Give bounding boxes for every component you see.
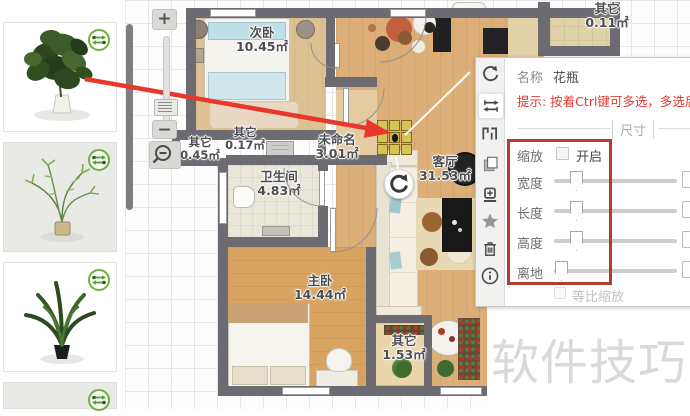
room-label-bedroom2: 次卧10.45㎡ [222, 26, 302, 54]
window-bottom-2 [440, 387, 482, 395]
room-label-unnamed: 未命名3.01㎡ [308, 133, 366, 161]
window-top-1 [210, 9, 256, 17]
room-label-other011: 其它0.11㎡ [576, 2, 638, 30]
rotate-arrow-icon [385, 170, 413, 198]
stove[interactable] [433, 12, 451, 52]
rug-flower3 [420, 248, 438, 266]
selected-vase-handles[interactable] [377, 120, 414, 157]
window-left [219, 172, 227, 224]
section-title-size: 尺寸 [612, 120, 654, 139]
swap-arrows-icon[interactable] [87, 388, 111, 412]
rotate-handle[interactable] [384, 169, 414, 199]
rotate-icon[interactable] [480, 64, 500, 84]
catalog-sidebar [0, 0, 125, 409]
divider-line-right [659, 128, 690, 129]
star-icon[interactable] [480, 211, 500, 231]
bed-master-duvet [228, 303, 308, 323]
watermark-block: 软件技巧 [487, 307, 690, 409]
divider-line-left [517, 128, 610, 129]
table-decor-dot2 [458, 228, 462, 232]
selection-handle[interactable] [389, 144, 400, 155]
table-berries1 [438, 328, 445, 335]
rug-circle-brown [398, 31, 412, 45]
watermark-text: 软件技巧 [491, 323, 687, 393]
wall-bathroom-bottom [226, 237, 328, 247]
wall-left-upper [186, 8, 196, 138]
table-berries2 [449, 336, 455, 342]
swap-arrows-icon[interactable] [87, 268, 111, 292]
width-input[interactable] [682, 171, 690, 188]
catalog-item-plant-ficus[interactable] [3, 22, 117, 132]
selection-handle[interactable] [377, 132, 388, 143]
proportional-label: 等比缩放 [572, 286, 624, 305]
catalog-item-plant-palm[interactable] [3, 262, 117, 372]
trash-icon[interactable] [480, 239, 500, 259]
catalog-item-plant-partial[interactable] [3, 382, 117, 409]
wall-balcony-top [374, 315, 426, 323]
copy-icon[interactable] [480, 154, 500, 174]
height-input[interactable] [682, 231, 690, 248]
red-highlight-frame [507, 139, 612, 285]
rug-dot [368, 24, 376, 32]
selected-vase[interactable] [389, 132, 400, 143]
zoom-slider-handle[interactable] [154, 99, 178, 116]
selection-handle[interactable] [401, 132, 412, 143]
desk-chair[interactable] [326, 348, 352, 372]
move-icon[interactable] [480, 184, 500, 204]
door-leaf-living [330, 208, 336, 252]
selection-handle[interactable] [401, 144, 412, 155]
bed-master-pillow1 [232, 366, 268, 385]
room-label-other017: 其它0.17㎡ [218, 126, 272, 151]
door-leaf-hall [343, 88, 349, 126]
rug-circle-black [424, 22, 435, 33]
elevation-icon[interactable] [480, 124, 500, 144]
sofa-pillow2 [389, 251, 402, 269]
room-label-living: 客厅31.53㎡ [413, 155, 477, 183]
wall-other-bottom [538, 46, 620, 56]
window-bottom-1 [282, 387, 330, 395]
bed-master-pillow2 [270, 366, 306, 385]
info-icon[interactable] [480, 266, 500, 286]
room-label-bathroom: 卫生间4.83㎡ [246, 170, 312, 198]
name-label: 名称 [517, 67, 543, 86]
flip-icon[interactable] [478, 93, 504, 119]
selection-handle[interactable] [389, 120, 400, 131]
zoom-in-button[interactable]: + [152, 9, 177, 30]
rug-circle-dark [375, 36, 390, 51]
rug-circle-white2 [412, 40, 425, 53]
dining-plant[interactable] [437, 360, 454, 377]
door-leaf-bathroom [319, 168, 325, 206]
swap-arrows-icon[interactable] [87, 148, 111, 172]
selection-handle[interactable] [377, 144, 388, 155]
wall-hall-top [325, 77, 377, 87]
proportional-checkbox[interactable] [554, 287, 566, 299]
zoom-out-button[interactable]: − [152, 120, 177, 139]
table-decor-dot1 [452, 220, 457, 225]
bed-blanket-cyan [208, 72, 286, 100]
elevation-input[interactable] [682, 261, 690, 278]
sidebar-scrollbar[interactable] [126, 24, 133, 210]
room-label-master: 主卧14.44㎡ [288, 274, 352, 302]
swap-arrows-icon[interactable] [87, 28, 111, 52]
length-input[interactable] [682, 201, 690, 218]
fridge[interactable] [483, 28, 508, 54]
name-value: 花瓶 [553, 67, 579, 86]
room-label-other153: 其它1.53㎡ [376, 334, 432, 362]
selection-handle[interactable] [377, 120, 388, 131]
catalog-item-plant-hanging[interactable] [3, 142, 117, 252]
multi-select-hint: 提示: 按着Ctrl键可多选，多选后 [517, 91, 690, 110]
shower-fixture[interactable] [262, 226, 290, 236]
object-toolbar [476, 58, 505, 306]
zoom-lens-button[interactable] [149, 141, 181, 169]
selection-handle[interactable] [401, 120, 412, 131]
window-top-2 [390, 9, 426, 17]
wall-bedroom2-right [326, 18, 335, 83]
flower-bed [458, 318, 480, 380]
coffee-table[interactable] [442, 198, 472, 252]
kitchen-tile-floor [508, 12, 538, 57]
magnifier-minus-icon [150, 142, 178, 166]
rug-flower1 [422, 212, 442, 232]
